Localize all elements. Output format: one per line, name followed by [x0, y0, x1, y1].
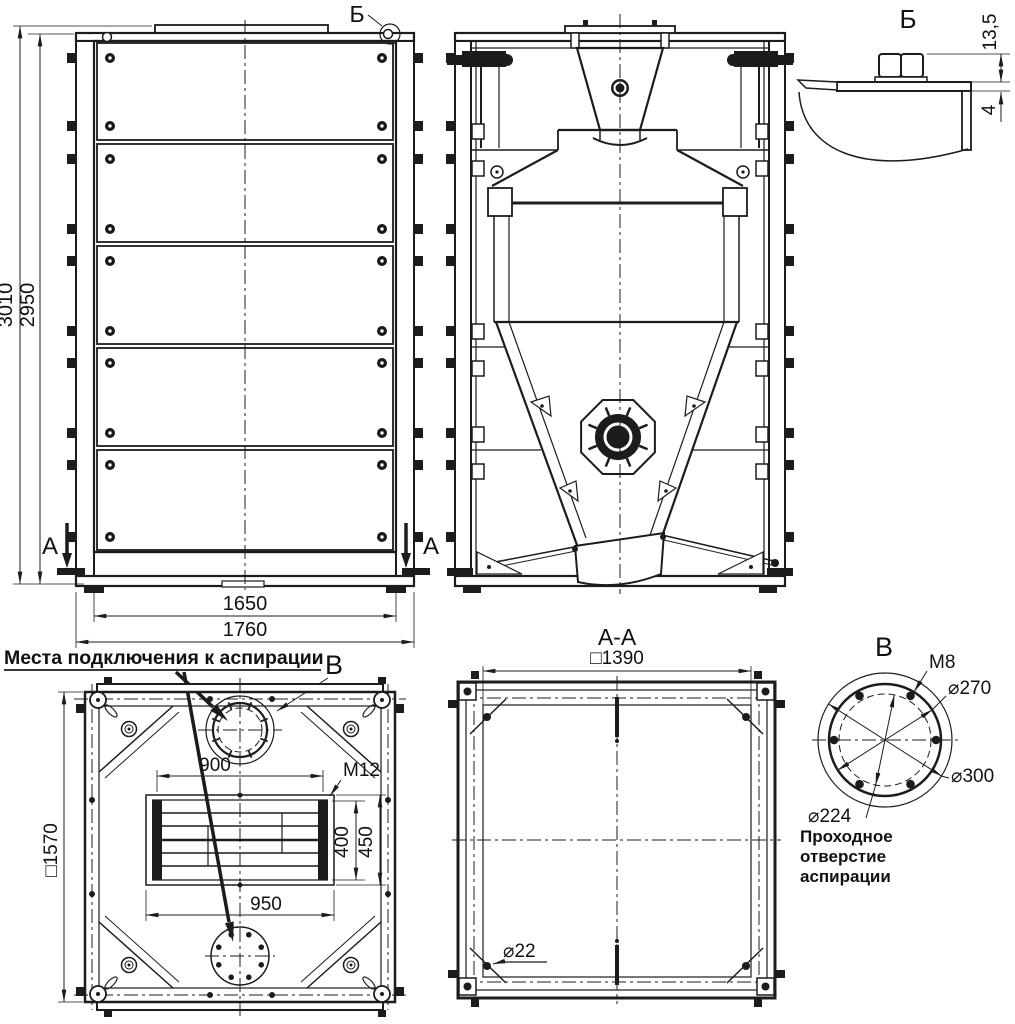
bolt-hole-icon: [906, 692, 915, 701]
passage-note: Проходное отверстие аспирации: [800, 827, 893, 886]
drawing-page: Б А А 3010 2950 1650 1760: [0, 0, 1015, 1024]
dim-224: ⌀224: [808, 806, 852, 827]
dim-3010: 3010: [0, 283, 17, 328]
detail-b-view: Б 13,5 4: [798, 4, 1010, 161]
section-aa-frame: [448, 666, 785, 1007]
dim-1650: 1650: [223, 593, 268, 615]
passage-note-line1: Проходное: [800, 827, 893, 846]
passage-note-line2: отверстие: [800, 847, 886, 866]
dim-1570: □1570: [41, 823, 62, 877]
bolt-hole-icon: [855, 780, 864, 789]
detail-v-view: В М8 ⌀270 ⌀300 ⌀224 Проход: [800, 632, 994, 886]
front-view: Б А А 3010 2950 1650 1760: [0, 1, 439, 648]
dim-22: ⌀22: [503, 941, 536, 962]
top-bolt-icon: [103, 33, 112, 42]
dim-400: 400: [332, 826, 353, 858]
pointer-arrow-icon: [225, 922, 234, 943]
port-cover-icon: [595, 414, 641, 460]
dim-300: ⌀300: [951, 766, 994, 787]
dim-450: 450: [356, 826, 377, 858]
section-aa-view: А-А □1390: [448, 624, 785, 1007]
side-section-view: [446, 14, 794, 594]
section-mark-right: А: [423, 533, 439, 560]
dim-2950: 2950: [17, 283, 39, 328]
dim-1390: □1390: [590, 648, 644, 669]
engineering-drawing: Б А А 3010 2950 1650 1760: [0, 0, 1015, 1024]
hole-dimension: ⌀22: [493, 941, 547, 964]
section-arrow-icon: [62, 553, 72, 568]
section-mark-left: А: [42, 533, 58, 560]
access-port: [581, 400, 655, 474]
top-bolt-icon: [384, 30, 393, 39]
passage-note-line3: аспирации: [800, 867, 891, 886]
dim-270: ⌀270: [948, 678, 991, 699]
thread-m8: М8: [929, 652, 955, 673]
top-view: Места подключения к аспирации В: [4, 647, 406, 1017]
aspiration-note-text: Места подключения к аспирации: [4, 647, 324, 669]
dim-4: 4: [979, 104, 1000, 115]
bolt-hole-icon: [855, 692, 864, 701]
dim-950: 950: [250, 894, 282, 915]
bolt-head-icon: [879, 54, 901, 77]
dim-1760: 1760: [223, 619, 268, 641]
dim-900: 900: [199, 755, 231, 776]
flange-detail: [812, 673, 958, 807]
detail-b-title: Б: [899, 4, 916, 34]
bolt-head-icon: [901, 54, 923, 77]
dim-13-5: 13,5: [980, 14, 1001, 51]
bolt-hole-icon: [906, 780, 915, 789]
thread-m12: М12: [343, 760, 380, 781]
break-arc: [799, 92, 968, 161]
detail-callout-label: Б: [349, 1, 364, 27]
detail-v-callout: В: [325, 650, 343, 680]
section-aa-title: А-А: [598, 624, 637, 650]
detail-b-geometry: [798, 54, 971, 161]
detail-v-title: В: [875, 632, 893, 662]
